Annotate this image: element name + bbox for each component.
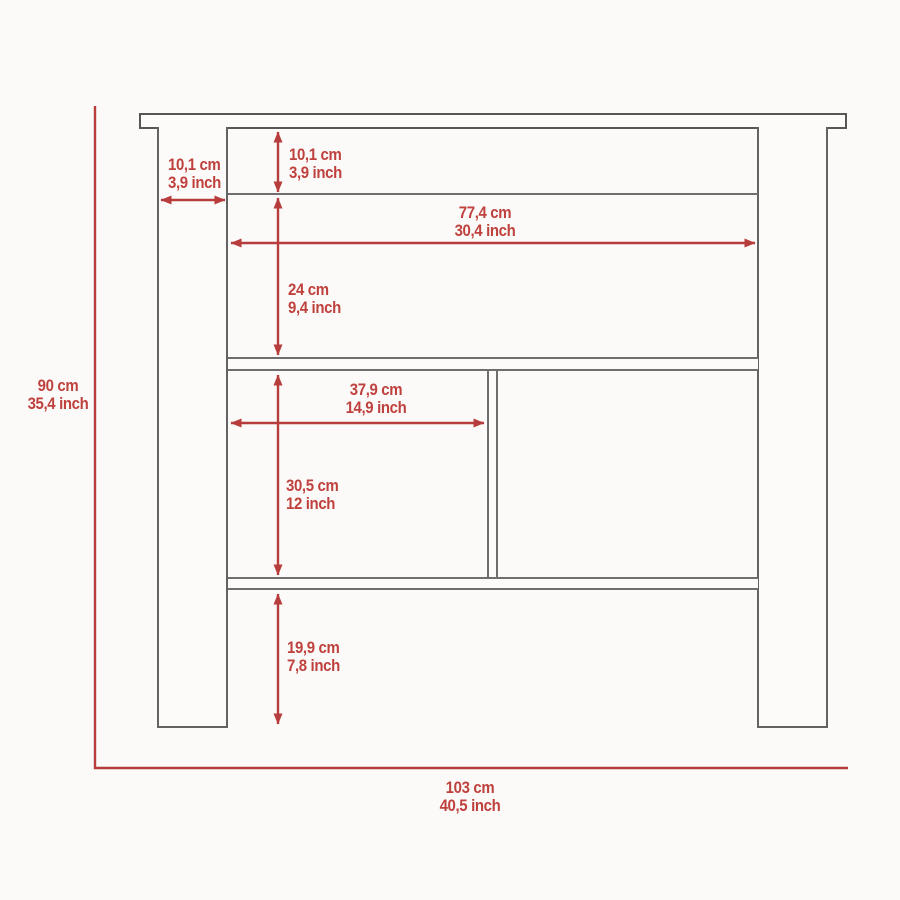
dim-label-bottom-clearance-inch: 7,8 inch [287, 657, 340, 675]
dim-label-overall-width-inch: 40,5 inch [440, 797, 501, 815]
dim-label-upper-section-height-inch: 9,4 inch [288, 299, 341, 317]
dim-label-upper-section-height: 24 cm 9,4 inch [288, 281, 341, 316]
dim-label-overall-height-inch: 35,4 inch [28, 395, 89, 413]
dim-label-cubby-width-cm: 37,9 cm [346, 381, 407, 399]
dim-label-cubby-width: 37,9 cm 14,9 inch [346, 381, 407, 416]
dim-label-top-frame-height-inch: 3,9 inch [289, 164, 342, 182]
dim-label-overall-height-cm: 90 cm [28, 377, 89, 395]
dim-label-top-frame-height: 10,1 cm 3,9 inch [289, 146, 342, 181]
dim-label-inner-width-inch: 30,4 inch [455, 222, 516, 240]
dim-label-bottom-clearance: 19,9 cm 7,8 inch [287, 639, 340, 674]
dim-label-cubby-width-inch: 14,9 inch [346, 399, 407, 417]
dim-label-inner-width-cm: 77,4 cm [455, 204, 516, 222]
dim-label-overall-width: 103 cm 40,5 inch [440, 779, 501, 814]
dim-label-inner-width: 77,4 cm 30,4 inch [455, 204, 516, 239]
dim-label-leg-width: 10,1 cm 3,9 inch [168, 156, 221, 191]
dim-label-leg-width-cm: 10,1 cm [168, 156, 221, 174]
dimension-diagram: 10,1 cm 3,9 inch 10,1 cm 3,9 inch 77,4 c… [0, 0, 900, 900]
dim-label-bottom-clearance-cm: 19,9 cm [287, 639, 340, 657]
dim-label-leg-width-inch: 3,9 inch [168, 174, 221, 192]
dim-label-overall-width-cm: 103 cm [440, 779, 501, 797]
dim-label-middle-section-height-inch: 12 inch [286, 495, 338, 513]
dim-label-middle-section-height-cm: 30,5 cm [286, 477, 338, 495]
dim-label-middle-section-height: 30,5 cm 12 inch [286, 477, 338, 512]
dim-label-overall-height: 90 cm 35,4 inch [28, 377, 89, 412]
dimension-lines-overlay [0, 0, 900, 900]
dim-label-top-frame-height-cm: 10,1 cm [289, 146, 342, 164]
dim-label-upper-section-height-cm: 24 cm [288, 281, 341, 299]
